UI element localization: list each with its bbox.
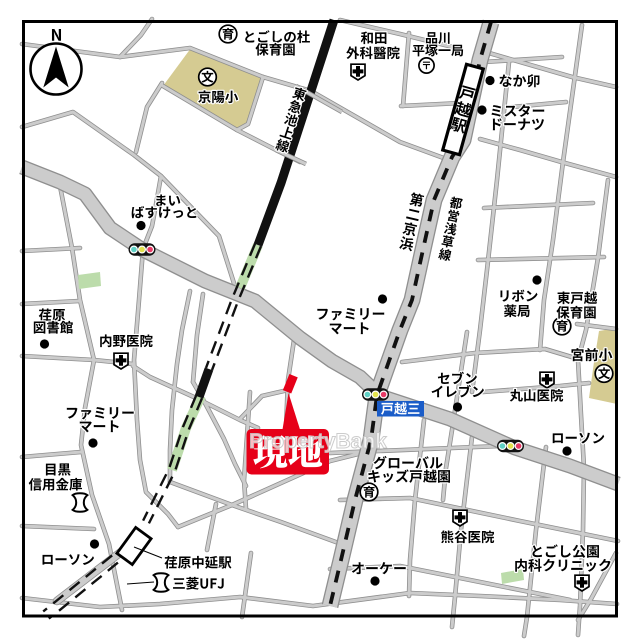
svg-text:PropertyBank: PropertyBank xyxy=(249,430,387,453)
